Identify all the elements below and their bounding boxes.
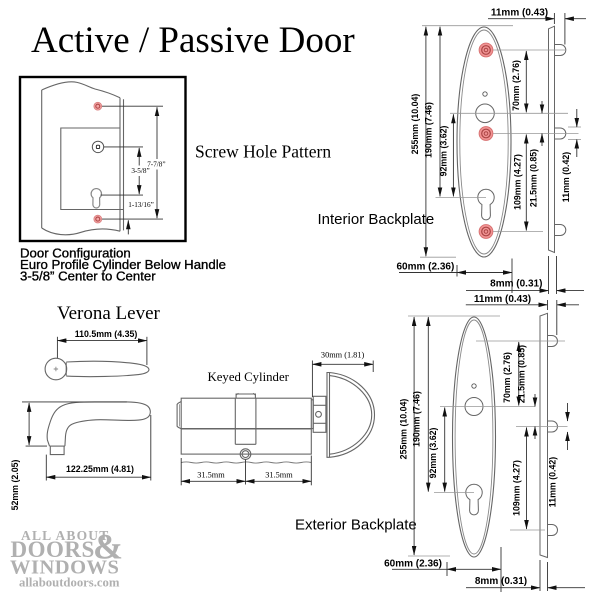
svg-text:11mm (0.42): 11mm (0.42) <box>548 457 558 507</box>
svg-text:Keyed Cylinder: Keyed Cylinder <box>208 370 290 384</box>
svg-text:31.5mm: 31.5mm <box>265 471 293 480</box>
svg-text:30mm (1.81): 30mm (1.81) <box>321 351 365 360</box>
svg-text:3-5/8”: 3-5/8” <box>131 167 149 175</box>
svg-text:11mm (0.42): 11mm (0.42) <box>561 152 571 202</box>
svg-text:11mm (0.43): 11mm (0.43) <box>491 8 548 19</box>
svg-text:&: & <box>93 527 123 567</box>
svg-text:Exterior Backplate: Exterior Backplate <box>295 517 417 534</box>
svg-text:Verona Lever: Verona Lever <box>57 303 161 324</box>
svg-text:70mm (2.76): 70mm (2.76) <box>502 352 512 403</box>
svg-text:110.5mm (4.35): 110.5mm (4.35) <box>75 329 138 339</box>
svg-text:255mm (10.04): 255mm (10.04) <box>410 94 420 155</box>
svg-text:122.25mm (4.81): 122.25mm (4.81) <box>66 464 134 474</box>
svg-text:70mm (2.76): 70mm (2.76) <box>511 60 521 111</box>
svg-text:Active / Passive Door: Active / Passive Door <box>31 20 355 61</box>
svg-text:31.5mm: 31.5mm <box>197 471 225 480</box>
svg-text:allaboutdoors.com: allaboutdoors.com <box>19 575 120 589</box>
svg-text:Screw Hole Pattern: Screw Hole Pattern <box>195 142 331 162</box>
svg-text:52mm (2.05): 52mm (2.05) <box>10 460 20 511</box>
svg-text:255mm (10.04): 255mm (10.04) <box>398 399 408 460</box>
svg-text:8mm (0.31): 8mm (0.31) <box>490 278 542 289</box>
svg-text:21.5mm (0.85): 21.5mm (0.85) <box>529 149 539 207</box>
svg-text:190mm (7.46): 190mm (7.46) <box>424 102 434 158</box>
svg-text:190mm (7.46): 190mm (7.46) <box>412 391 422 447</box>
svg-text:21.5mm (0.85): 21.5mm (0.85) <box>517 345 527 403</box>
svg-text:109mm (4.27): 109mm (4.27) <box>513 154 523 210</box>
svg-text:7-7/8”: 7-7/8” <box>147 160 165 168</box>
svg-text:3-5/8” Center to Center: 3-5/8” Center to Center <box>20 269 156 284</box>
svg-text:11mm (0.43): 11mm (0.43) <box>474 294 531 305</box>
svg-text:60mm (2.36): 60mm (2.36) <box>384 559 442 570</box>
svg-text:8mm (0.31): 8mm (0.31) <box>475 576 527 587</box>
svg-text:92mm (3.62): 92mm (3.62) <box>428 428 438 479</box>
svg-text:60mm (2.36): 60mm (2.36) <box>396 261 454 272</box>
svg-text:Interior Backplate: Interior Backplate <box>318 211 435 228</box>
svg-text:1-13/16”: 1-13/16” <box>128 201 154 209</box>
svg-text:92mm (3.62): 92mm (3.62) <box>439 126 449 177</box>
svg-text:109mm (4.27): 109mm (4.27) <box>512 460 522 516</box>
